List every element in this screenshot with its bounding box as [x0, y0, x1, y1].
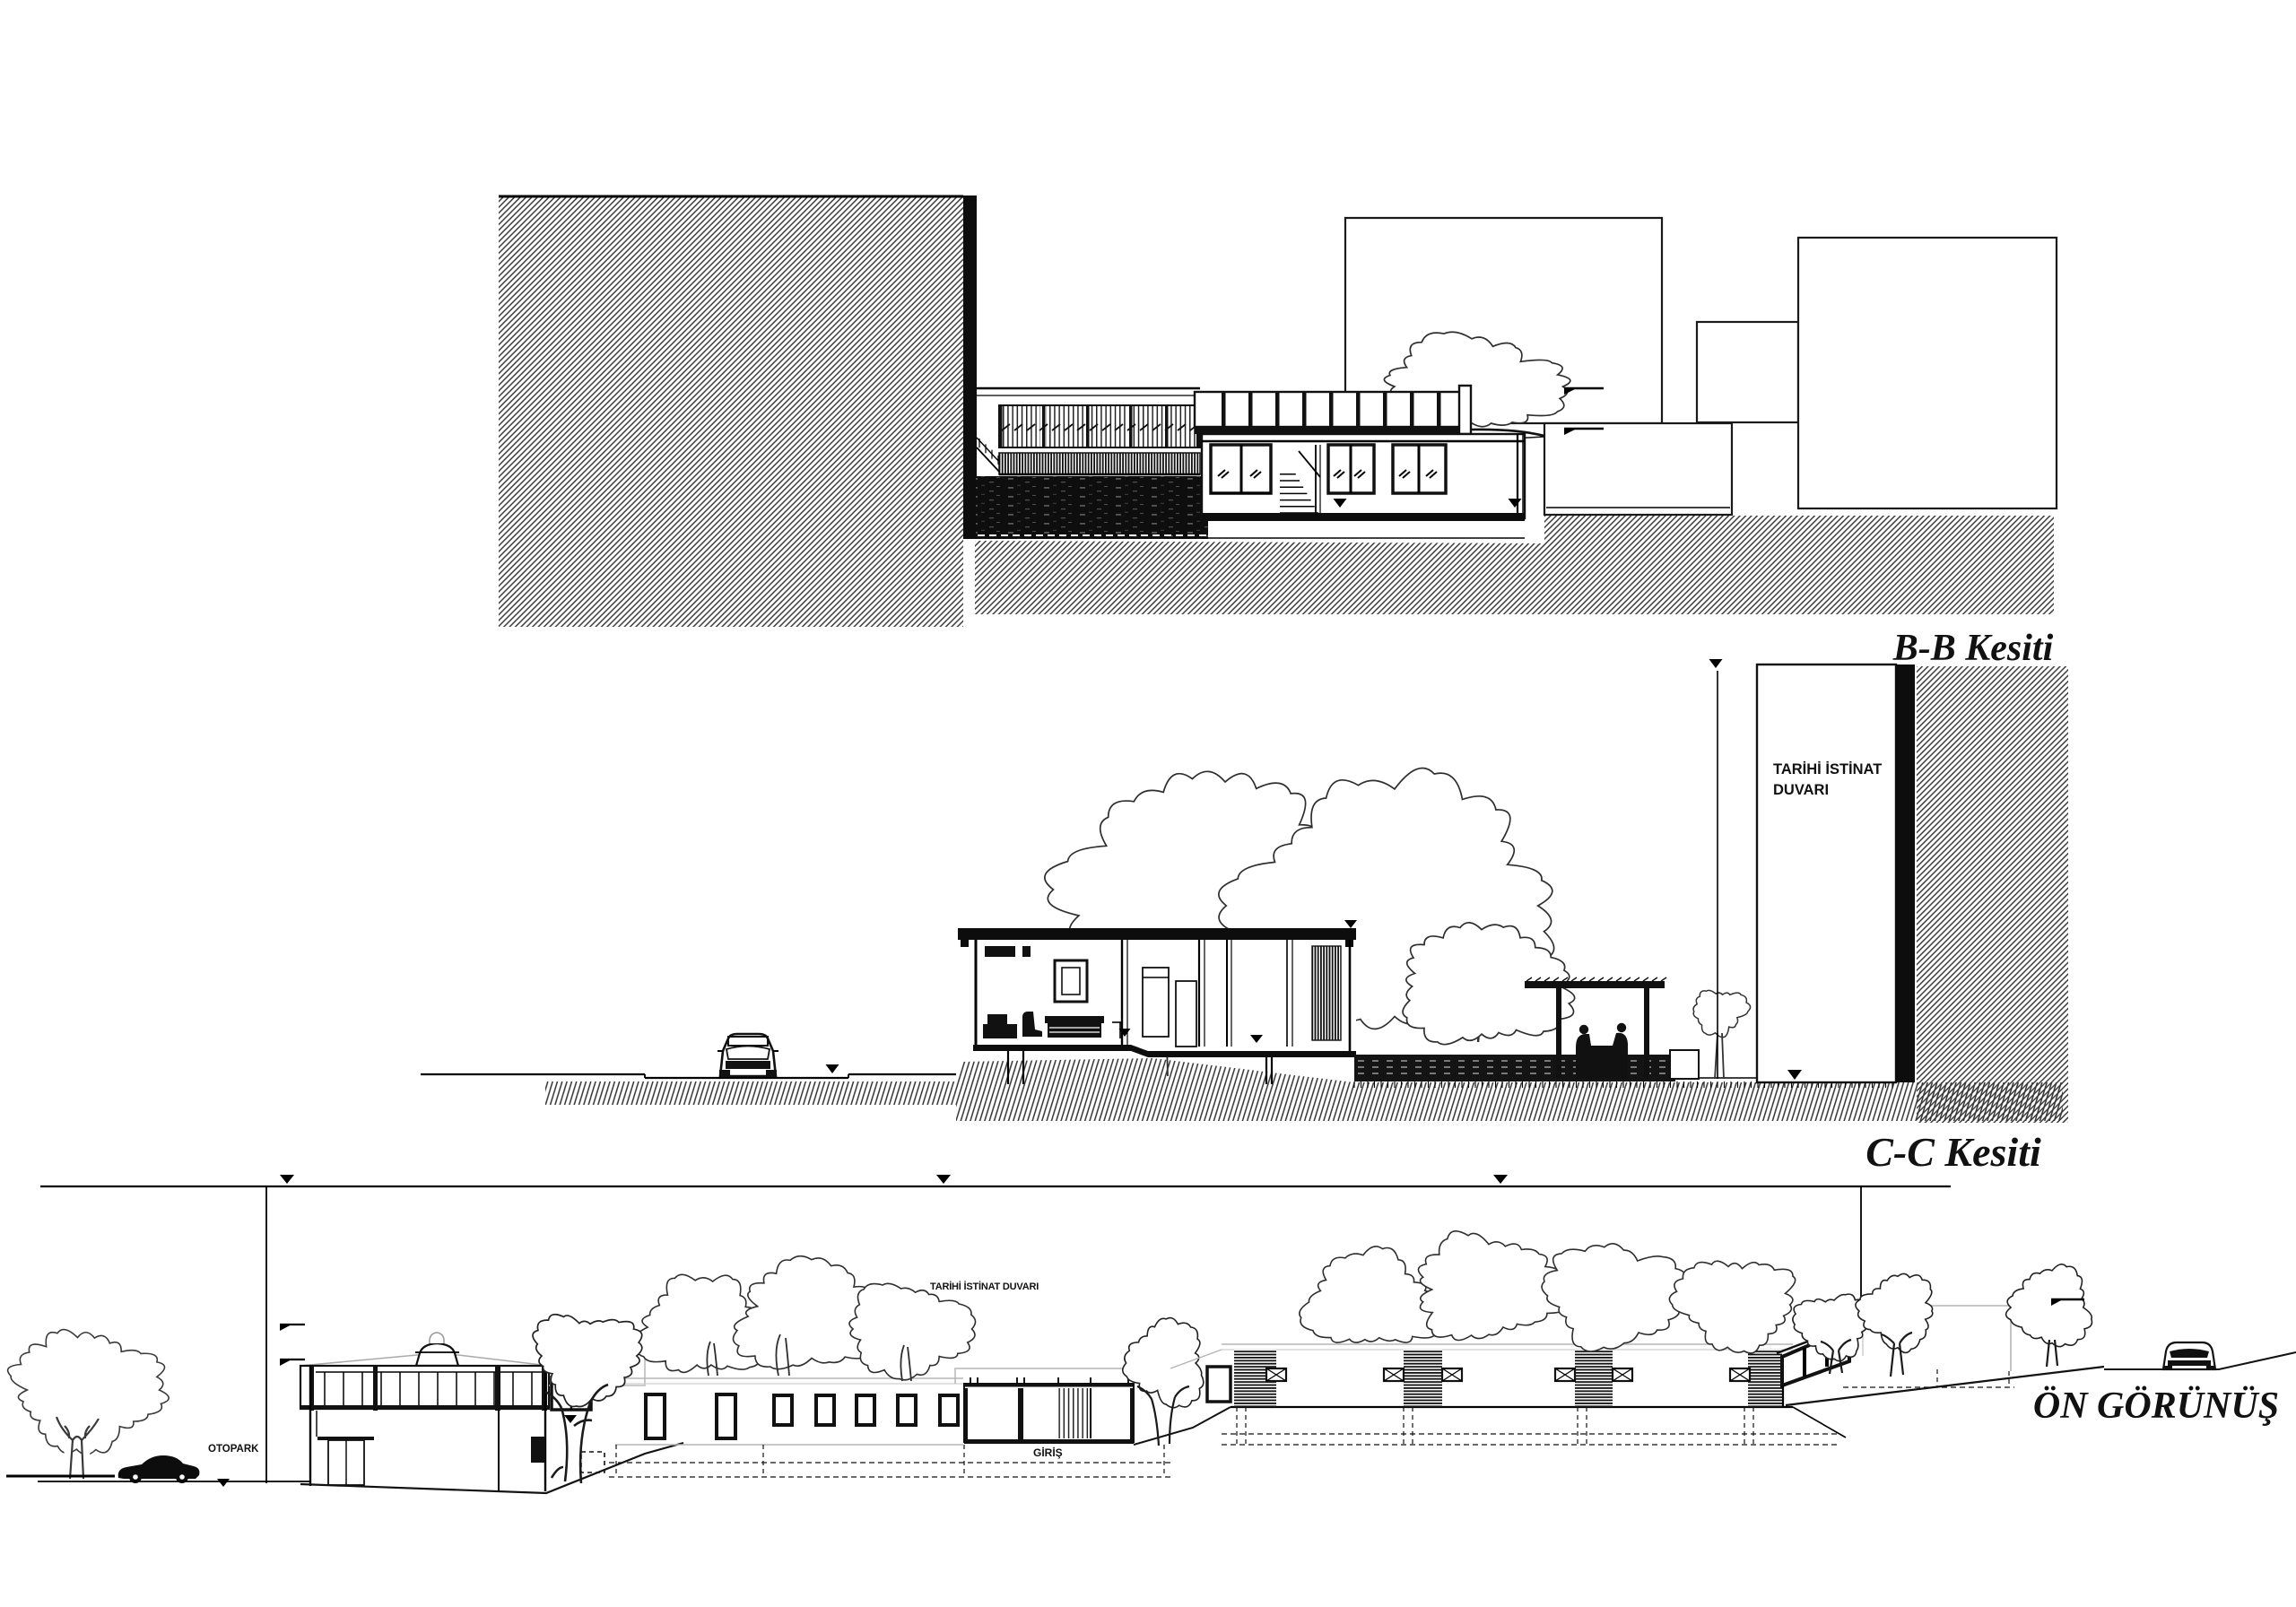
svg-text:C-C Kesiti: C-C Kesiti [1865, 1129, 2041, 1175]
svg-text:TARİHİ İSTİNAT: TARİHİ İSTİNAT [1773, 761, 1882, 777]
svg-text:B-B Kesiti: B-B Kesiti [1892, 628, 2054, 669]
svg-text:ÖN GÖRÜNÜŞ: ÖN GÖRÜNÜŞ [2033, 1385, 2279, 1427]
svg-text:DUVARI: DUVARI [1773, 782, 1829, 798]
svg-text:TARİHİ İSTİNAT DUVARI: TARİHİ İSTİNAT DUVARI [930, 1281, 1039, 1292]
svg-text:OTOPARK: OTOPARK [208, 1444, 259, 1455]
svg-text:GİRİŞ: GİRİŞ [1033, 1446, 1063, 1459]
